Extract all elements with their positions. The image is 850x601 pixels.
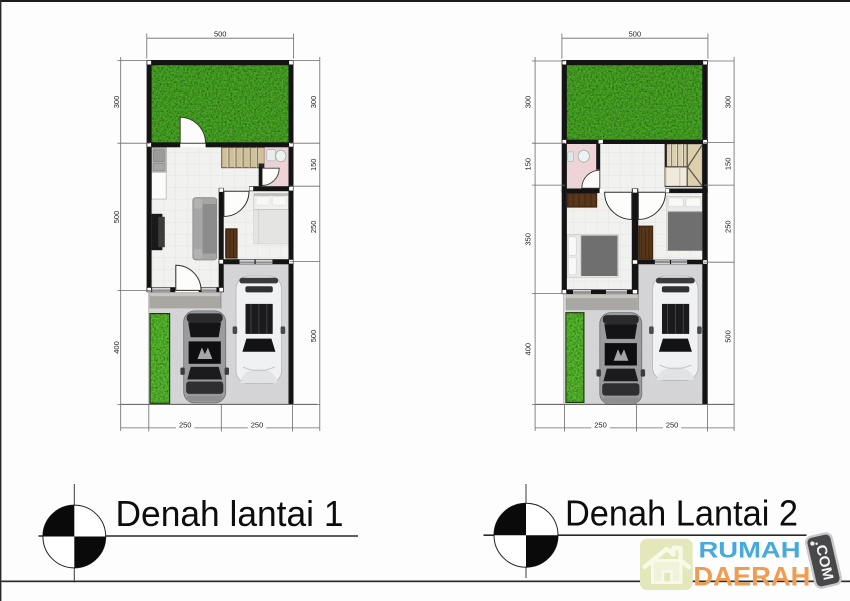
svg-text:350: 350 [524, 233, 533, 246]
svg-text:150: 150 [309, 159, 318, 172]
svg-text:150: 150 [723, 158, 732, 171]
svg-text:150: 150 [524, 158, 533, 171]
svg-text:300: 300 [524, 96, 533, 109]
svg-text:Denah Lantai 2: Denah Lantai 2 [565, 493, 798, 534]
svg-text:250: 250 [179, 421, 192, 430]
svg-text:Denah lantai 1: Denah lantai 1 [116, 493, 344, 534]
svg-text:250: 250 [309, 221, 318, 234]
svg-text:250: 250 [251, 421, 264, 430]
svg-text:300: 300 [723, 96, 732, 109]
svg-text:RUMAH: RUMAH [699, 538, 801, 563]
svg-text:500: 500 [723, 330, 732, 343]
svg-text:250: 250 [723, 220, 732, 233]
svg-text:500: 500 [629, 30, 642, 39]
svg-text:DAERAH: DAERAH [693, 562, 810, 592]
svg-text:500: 500 [214, 30, 227, 39]
svg-text:400: 400 [112, 341, 121, 354]
svg-text:500: 500 [309, 330, 318, 343]
svg-text:400: 400 [524, 343, 533, 356]
svg-text:300: 300 [309, 96, 318, 109]
svg-text:250: 250 [594, 421, 607, 430]
svg-text:250: 250 [666, 421, 679, 430]
svg-text:500: 500 [112, 211, 121, 224]
svg-text:300: 300 [112, 96, 121, 109]
